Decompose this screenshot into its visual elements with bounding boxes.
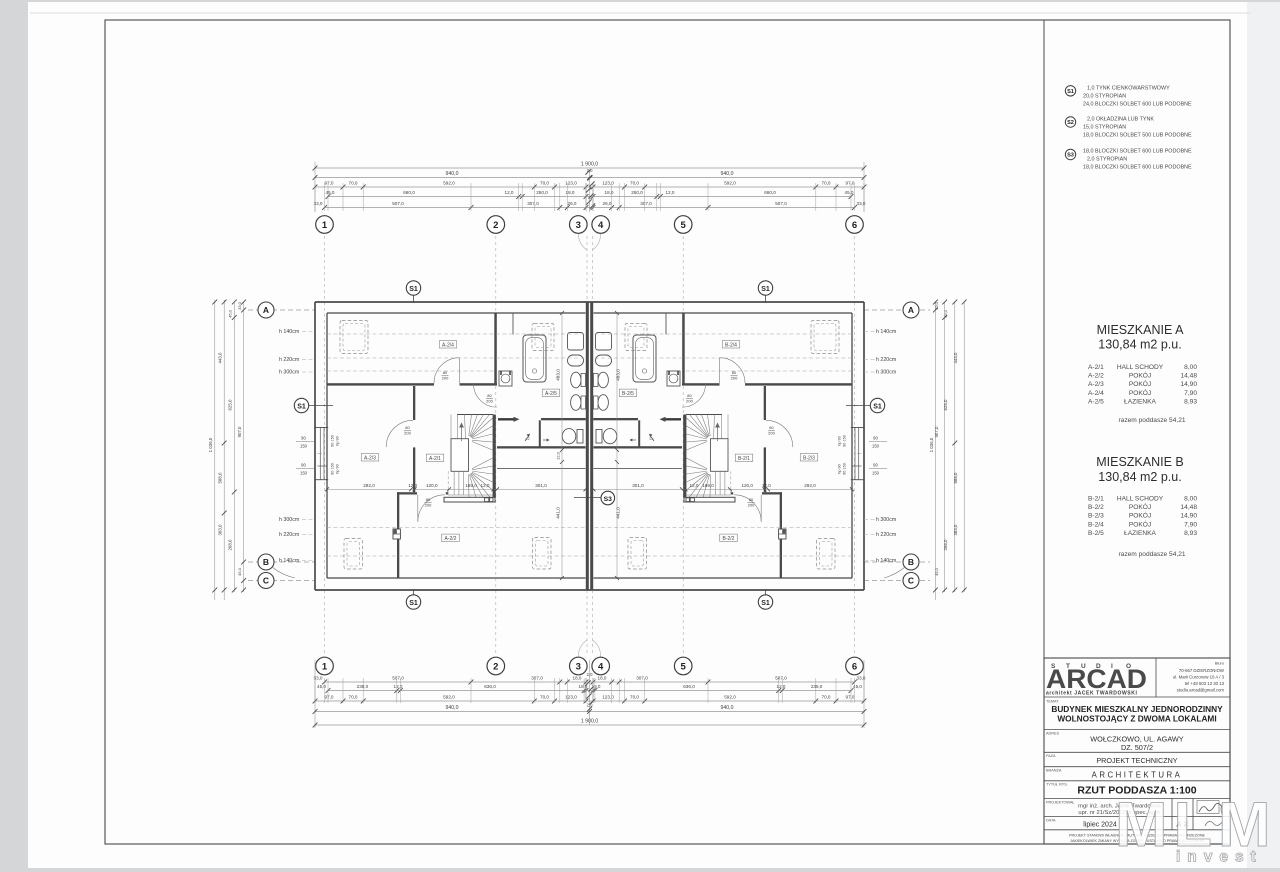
- svg-text:18,0 BLOCZKI SOLBET 600 LUB PO: 18,0 BLOCZKI SOLBET 600 LUB PODOBNE: [1083, 165, 1192, 171]
- svg-text:441,0: 441,0: [616, 507, 621, 519]
- svg-text:169,0: 169,0: [465, 483, 477, 488]
- svg-text:HALL SCHODY: HALL SCHODY: [1117, 496, 1164, 503]
- svg-text:592,0: 592,0: [724, 694, 736, 699]
- svg-text:588,0: 588,0: [953, 472, 958, 484]
- svg-text:4: 4: [598, 662, 604, 673]
- svg-text:150: 150: [300, 444, 308, 449]
- svg-text:h 300cm: h 300cm: [279, 517, 300, 523]
- svg-text:441,0: 441,0: [556, 507, 561, 519]
- svg-text:12,0: 12,0: [408, 483, 417, 488]
- svg-text:DATA: DATA: [1046, 819, 1056, 823]
- svg-text:70,0: 70,0: [630, 694, 639, 699]
- svg-text:7,90: 7,90: [1184, 390, 1197, 397]
- svg-text:B-2/1: B-2/1: [738, 456, 750, 462]
- svg-text:33,0: 33,0: [857, 201, 866, 206]
- svg-text:A: A: [908, 305, 914, 315]
- svg-text:DZ. 507/2: DZ. 507/2: [1121, 743, 1153, 752]
- svg-text:200: 200: [425, 503, 432, 508]
- svg-text:238,0: 238,0: [811, 684, 823, 689]
- svg-text:ŁAZIENKA: ŁAZIENKA: [1124, 398, 1156, 405]
- svg-text:B-2/5: B-2/5: [1088, 530, 1104, 537]
- svg-text:483,0: 483,0: [616, 369, 621, 381]
- svg-text:70,0: 70,0: [349, 694, 358, 699]
- svg-text:14,48: 14,48: [1180, 504, 1197, 511]
- svg-text:97,0: 97,0: [846, 180, 855, 185]
- svg-text:45,0: 45,0: [237, 567, 242, 576]
- svg-text:1 036,0: 1 036,0: [208, 437, 213, 452]
- svg-text:292,0: 292,0: [363, 483, 375, 488]
- svg-text:12,0: 12,0: [777, 684, 786, 689]
- svg-text:268,0: 268,0: [228, 539, 233, 551]
- svg-text:FAZA: FAZA: [1046, 754, 1056, 758]
- svg-text:6: 6: [852, 662, 857, 673]
- svg-text:invest: invest: [1176, 849, 1263, 866]
- svg-text:301,0: 301,0: [535, 483, 547, 488]
- svg-text:tel +48 503 13 30 13: tel +48 503 13 30 13: [1185, 681, 1225, 686]
- svg-text:h 220cm: h 220cm: [279, 357, 300, 363]
- svg-text:5: 5: [681, 220, 687, 231]
- svg-text:940,0: 940,0: [446, 171, 459, 177]
- svg-text:130,84 m2 p.u.: 130,84 m2 p.u.: [1098, 470, 1181, 484]
- svg-text:123,0: 123,0: [602, 180, 614, 185]
- svg-text:S1: S1: [409, 286, 418, 293]
- svg-text:8,93: 8,93: [1184, 398, 1197, 405]
- svg-text:h 300cm: h 300cm: [279, 370, 300, 376]
- svg-text:ARCAD: ARCAD: [1046, 664, 1147, 694]
- svg-text:8,00: 8,00: [1184, 496, 1197, 503]
- svg-text:250,0: 250,0: [536, 190, 548, 195]
- svg-text:90 150: 90 150: [331, 463, 335, 475]
- svg-text:26,0: 26,0: [568, 201, 577, 206]
- svg-text:POKÓJ: POKÓJ: [1129, 379, 1151, 388]
- svg-text:ŁAZIENKA: ŁAZIENKA: [1124, 530, 1156, 537]
- svg-text:45,0: 45,0: [943, 309, 948, 318]
- svg-text:B-2/2: B-2/2: [723, 536, 735, 542]
- svg-text:200: 200: [731, 376, 738, 381]
- svg-text:h 300cm: h 300cm: [876, 370, 897, 376]
- svg-text:5: 5: [681, 662, 687, 673]
- svg-text:POKÓJ: POKÓJ: [1129, 371, 1151, 380]
- svg-text:45,0: 45,0: [317, 684, 326, 689]
- svg-text:MIESZKANIE B: MIESZKANIE B: [1096, 455, 1184, 469]
- svg-text:940,0: 940,0: [446, 705, 459, 711]
- svg-text:B-2/1: B-2/1: [1088, 496, 1104, 503]
- svg-text:BRANŻA: BRANŻA: [1046, 768, 1062, 773]
- svg-text:80: 80: [749, 497, 754, 502]
- svg-text:C: C: [908, 576, 914, 586]
- svg-text:200: 200: [486, 399, 493, 404]
- svg-text:A: A: [263, 305, 269, 315]
- svg-text:studio.arcad@gmail.com: studio.arcad@gmail.com: [1177, 688, 1225, 693]
- svg-text:97,0: 97,0: [325, 694, 334, 699]
- svg-text:90: 90: [301, 436, 306, 441]
- svg-text:POKÓJ: POKÓJ: [1129, 502, 1151, 511]
- svg-text:80: 80: [426, 497, 431, 502]
- svg-text:h 140cm: h 140cm: [876, 558, 897, 564]
- svg-text:B: B: [263, 557, 269, 567]
- svg-text:h 300cm: h 300cm: [876, 517, 897, 523]
- svg-text:307,0: 307,0: [636, 675, 648, 680]
- svg-text:120,0: 120,0: [741, 483, 753, 488]
- svg-text:20,0 STYROPIAN: 20,0 STYROPIAN: [1083, 94, 1126, 100]
- svg-text:33,0: 33,0: [237, 301, 242, 310]
- svg-text:18,0: 18,0: [605, 190, 614, 195]
- svg-text:1,0 TYNK CIENKOWARSTWOWY: 1,0 TYNK CIENKOWARSTWOWY: [1087, 86, 1170, 92]
- svg-text:507,0: 507,0: [775, 675, 787, 680]
- svg-text:90: 90: [873, 436, 878, 441]
- svg-text:443,0: 443,0: [953, 352, 958, 364]
- svg-text:architekt JACEK TWARDOWSKI: architekt JACEK TWARDOWSKI: [1046, 691, 1137, 697]
- svg-text:123,0: 123,0: [565, 180, 577, 185]
- svg-text:S1: S1: [873, 403, 882, 410]
- svg-text:12,0: 12,0: [690, 483, 699, 488]
- svg-text:200: 200: [404, 431, 411, 436]
- svg-text:45,0: 45,0: [845, 190, 854, 195]
- svg-text:B: B: [908, 557, 914, 567]
- svg-text:250,0: 250,0: [631, 190, 643, 195]
- svg-text:14,90: 14,90: [1180, 513, 1197, 520]
- svg-text:238,0: 238,0: [357, 684, 369, 689]
- svg-text:h 220cm: h 220cm: [876, 357, 897, 363]
- svg-text:A-2/3: A-2/3: [1088, 381, 1104, 388]
- svg-text:70,0: 70,0: [540, 180, 549, 185]
- svg-text:A-2/1: A-2/1: [1088, 364, 1104, 371]
- svg-text:2,0 OKŁADZINA LUB TYNK: 2,0 OKŁADZINA LUB TYNK: [1087, 117, 1154, 123]
- svg-text:26,0: 26,0: [603, 201, 612, 206]
- svg-text:A-2/4: A-2/4: [1088, 390, 1104, 397]
- svg-text:200: 200: [768, 431, 775, 436]
- svg-text:70,0: 70,0: [349, 180, 358, 185]
- svg-text:592,0: 592,0: [443, 694, 455, 699]
- svg-text:18,0 BLOCZKI SOLBET 500 LUB PO: 18,0 BLOCZKI SOLBET 500 LUB PODOBNE: [1083, 133, 1192, 139]
- svg-text:A-2/5: A-2/5: [545, 391, 557, 397]
- svg-text:80: 80: [487, 393, 492, 398]
- svg-text:TEMAT: TEMAT: [1046, 700, 1059, 704]
- svg-text:625,0: 625,0: [943, 399, 948, 411]
- svg-text:90 150: 90 150: [331, 435, 335, 447]
- svg-text:S1: S1: [297, 403, 306, 410]
- svg-text:S3: S3: [604, 496, 613, 503]
- svg-text:BUDYNEK MIESZKALNY JEDNORODZIN: BUDYNEK MIESZKALNY JEDNORODZINNY: [1051, 704, 1223, 714]
- svg-text:h 140cm: h 140cm: [279, 329, 300, 335]
- svg-text:507,0: 507,0: [392, 201, 404, 206]
- svg-text:97,0: 97,0: [846, 694, 855, 699]
- svg-text:97,0: 97,0: [325, 180, 334, 185]
- svg-text:MIESZKANIE A: MIESZKANIE A: [1097, 323, 1184, 337]
- svg-text:2,0 STYROPIAN: 2,0 STYROPIAN: [1087, 157, 1127, 163]
- svg-text:45,0: 45,0: [934, 567, 939, 576]
- svg-text:A-2/2: A-2/2: [1088, 373, 1104, 380]
- svg-text:80: 80: [769, 425, 774, 430]
- svg-text:90 150: 90 150: [843, 463, 847, 475]
- svg-text:A-2/1: A-2/1: [429, 456, 441, 462]
- svg-text:PROJEKTOWAŁ: PROJEKTOWAŁ: [1046, 801, 1074, 805]
- svg-text:80: 80: [443, 370, 448, 375]
- svg-text:B-2/4: B-2/4: [1088, 521, 1104, 528]
- svg-text:150: 150: [872, 471, 880, 476]
- svg-text:hp 90: hp 90: [336, 436, 340, 446]
- svg-text:507,0: 507,0: [392, 675, 404, 680]
- svg-text:lipiec 2024: lipiec 2024: [1083, 822, 1117, 829]
- svg-text:S1: S1: [409, 600, 418, 607]
- svg-text:123,0: 123,0: [565, 694, 577, 699]
- svg-text:150: 150: [872, 444, 880, 449]
- svg-text:ARCHITEKTURA: ARCHITEKTURA: [1092, 771, 1183, 780]
- svg-text:S2: S2: [1067, 120, 1074, 126]
- svg-text:307,0: 307,0: [527, 201, 539, 206]
- svg-text:15,0 STYROPIAN: 15,0 STYROPIAN: [1083, 125, 1126, 131]
- svg-text:120,0: 120,0: [426, 483, 438, 488]
- svg-text:12,0: 12,0: [481, 483, 490, 488]
- svg-text:636,0: 636,0: [484, 684, 496, 689]
- svg-text:70-667 DZIERZONIOW: 70-667 DZIERZONIOW: [1179, 668, 1225, 673]
- svg-text:A-2/5: A-2/5: [1088, 398, 1104, 405]
- svg-text:307,0: 307,0: [640, 201, 652, 206]
- svg-text:588,0: 588,0: [218, 472, 223, 484]
- svg-text:592,0: 592,0: [443, 180, 455, 185]
- svg-text:940,0: 940,0: [721, 705, 734, 711]
- svg-text:80: 80: [687, 393, 692, 398]
- svg-text:200: 200: [748, 503, 755, 508]
- svg-text:150: 150: [300, 471, 308, 476]
- svg-text:⌀2: ⌀2: [649, 437, 653, 441]
- svg-text:6: 6: [852, 220, 857, 231]
- svg-text:B-2/5: B-2/5: [622, 391, 634, 397]
- svg-text:B-2/3: B-2/3: [803, 455, 815, 461]
- svg-text:PROJEKT TECHNICZNY: PROJEKT TECHNICZNY: [1096, 756, 1177, 765]
- svg-text:h 140cm: h 140cm: [279, 558, 300, 564]
- svg-text:33,0: 33,0: [857, 675, 866, 680]
- svg-text:507,0: 507,0: [775, 201, 787, 206]
- svg-text:B-2/4: B-2/4: [725, 342, 737, 348]
- svg-text:⌀2: ⌀2: [525, 437, 529, 441]
- svg-text:200: 200: [442, 376, 449, 381]
- svg-text:383,0: 383,0: [218, 524, 223, 536]
- svg-text:70,0: 70,0: [822, 694, 831, 699]
- svg-text:940,0: 940,0: [721, 171, 734, 177]
- svg-text:2: 2: [493, 220, 498, 231]
- svg-text:Biuro: Biuro: [1215, 661, 1224, 666]
- svg-text:POKÓJ: POKÓJ: [1129, 388, 1151, 397]
- svg-text:hp 90: hp 90: [838, 436, 842, 446]
- svg-text:18,0 BLOCZKI SOLBET 600 LUB PO: 18,0 BLOCZKI SOLBET 600 LUB PODOBNE: [1083, 149, 1192, 155]
- svg-text:A-2/3: A-2/3: [364, 455, 376, 461]
- svg-text:268,0: 268,0: [943, 539, 948, 551]
- svg-text:razem poddasze 54,21: razem poddasze 54,21: [1118, 551, 1185, 558]
- svg-text:POKÓJ: POKÓJ: [1129, 519, 1151, 528]
- svg-text:70,0: 70,0: [630, 180, 639, 185]
- svg-text:S1: S1: [761, 286, 770, 293]
- svg-text:24,0 BLOCZKI SOLBET 600 LUB PO: 24,0 BLOCZKI SOLBET 600 LUB PODOBNE: [1083, 102, 1192, 108]
- svg-text:636,0: 636,0: [683, 684, 695, 689]
- svg-text:3: 3: [576, 220, 581, 231]
- svg-text:TYTUŁ RYS.: TYTUŁ RYS.: [1046, 783, 1068, 787]
- svg-text:2: 2: [493, 662, 498, 673]
- svg-text:hp 90: hp 90: [838, 464, 842, 474]
- svg-text:h 220cm: h 220cm: [279, 532, 300, 538]
- svg-text:S1: S1: [761, 600, 770, 607]
- svg-text:907,0: 907,0: [934, 426, 939, 438]
- svg-text:1: 1: [322, 662, 328, 673]
- svg-text:WOLNOSTOJĄCY Z DWOMA LOKALAMI: WOLNOSTOJĄCY Z DWOMA LOKALAMI: [1057, 714, 1216, 724]
- svg-text:h 220cm: h 220cm: [876, 532, 897, 538]
- svg-text:14,48: 14,48: [1180, 373, 1197, 380]
- svg-text:B-2/2: B-2/2: [1088, 504, 1104, 511]
- svg-text:12,0: 12,0: [666, 190, 675, 195]
- svg-text:592,0: 592,0: [724, 180, 736, 185]
- svg-text:12,0: 12,0: [505, 190, 514, 195]
- svg-text:14,90: 14,90: [1180, 381, 1197, 388]
- svg-text:POKÓJ: POKÓJ: [1129, 511, 1151, 520]
- svg-text:razem poddasze 54,21: razem poddasze 54,21: [1118, 417, 1185, 424]
- svg-text:18,0: 18,0: [573, 675, 582, 680]
- svg-text:660,0: 660,0: [403, 190, 415, 195]
- svg-text:8,00: 8,00: [1184, 364, 1197, 371]
- svg-text:18,0: 18,0: [566, 190, 575, 195]
- svg-text:18,0: 18,0: [598, 675, 607, 680]
- svg-text:ADRES: ADRES: [1046, 732, 1060, 736]
- svg-text:307,0: 307,0: [531, 675, 543, 680]
- svg-text:80: 80: [732, 370, 737, 375]
- svg-text:4: 4: [598, 220, 604, 231]
- svg-text:C: C: [263, 576, 269, 586]
- svg-text:h 140cm: h 140cm: [876, 329, 897, 335]
- svg-text:12,0: 12,0: [762, 483, 771, 488]
- svg-text:33,0: 33,0: [934, 301, 939, 310]
- svg-text:45,0: 45,0: [228, 309, 233, 318]
- svg-text:A-2/4: A-2/4: [442, 342, 454, 348]
- svg-text:90: 90: [301, 463, 306, 468]
- svg-text:A-2/2: A-2/2: [445, 536, 457, 542]
- svg-text:90: 90: [873, 463, 878, 468]
- svg-text:1 036,0: 1 036,0: [929, 437, 934, 452]
- svg-text:3: 3: [576, 662, 581, 673]
- svg-text:12,0: 12,0: [394, 684, 403, 689]
- svg-text:660,0: 660,0: [764, 190, 776, 195]
- svg-text:70,0: 70,0: [540, 694, 549, 699]
- svg-text:90 150: 90 150: [843, 435, 847, 447]
- svg-text:123,0: 123,0: [602, 694, 614, 699]
- svg-text:169,0: 169,0: [702, 483, 714, 488]
- svg-text:301,0: 301,0: [632, 483, 644, 488]
- svg-text:443,0: 443,0: [218, 352, 223, 364]
- svg-text:200: 200: [686, 399, 693, 404]
- svg-text:80: 80: [405, 425, 410, 430]
- svg-text:7,90: 7,90: [1184, 521, 1197, 528]
- svg-text:S1: S1: [1067, 89, 1074, 95]
- svg-text:70,0: 70,0: [822, 180, 831, 185]
- svg-text:ul. Marii Curzonow 10 A / 3: ul. Marii Curzonow 10 A / 3: [1173, 675, 1225, 680]
- svg-text:625,0: 625,0: [228, 399, 233, 411]
- svg-text:8,93: 8,93: [1184, 530, 1197, 537]
- svg-text:1 900,0: 1 900,0: [581, 718, 598, 724]
- svg-text:2,0: 2,0: [587, 672, 593, 677]
- svg-text:HALL SCHODY: HALL SCHODY: [1117, 364, 1164, 371]
- svg-text:hp 90: hp 90: [336, 464, 340, 474]
- svg-text:1: 1: [322, 220, 328, 231]
- svg-text:483,0: 483,0: [556, 369, 561, 381]
- svg-text:1 900,0: 1 900,0: [581, 162, 598, 168]
- svg-text:S3: S3: [1067, 153, 1074, 159]
- svg-text:B-2/3: B-2/3: [1088, 513, 1104, 520]
- svg-text:383,0: 383,0: [953, 524, 958, 536]
- svg-text:130,84 m2 p.u.: 130,84 m2 p.u.: [1098, 338, 1181, 352]
- svg-text:45,0: 45,0: [326, 190, 335, 195]
- svg-text:907,0: 907,0: [237, 426, 242, 438]
- svg-text:12,0: 12,0: [556, 451, 561, 460]
- svg-text:292,0: 292,0: [804, 483, 816, 488]
